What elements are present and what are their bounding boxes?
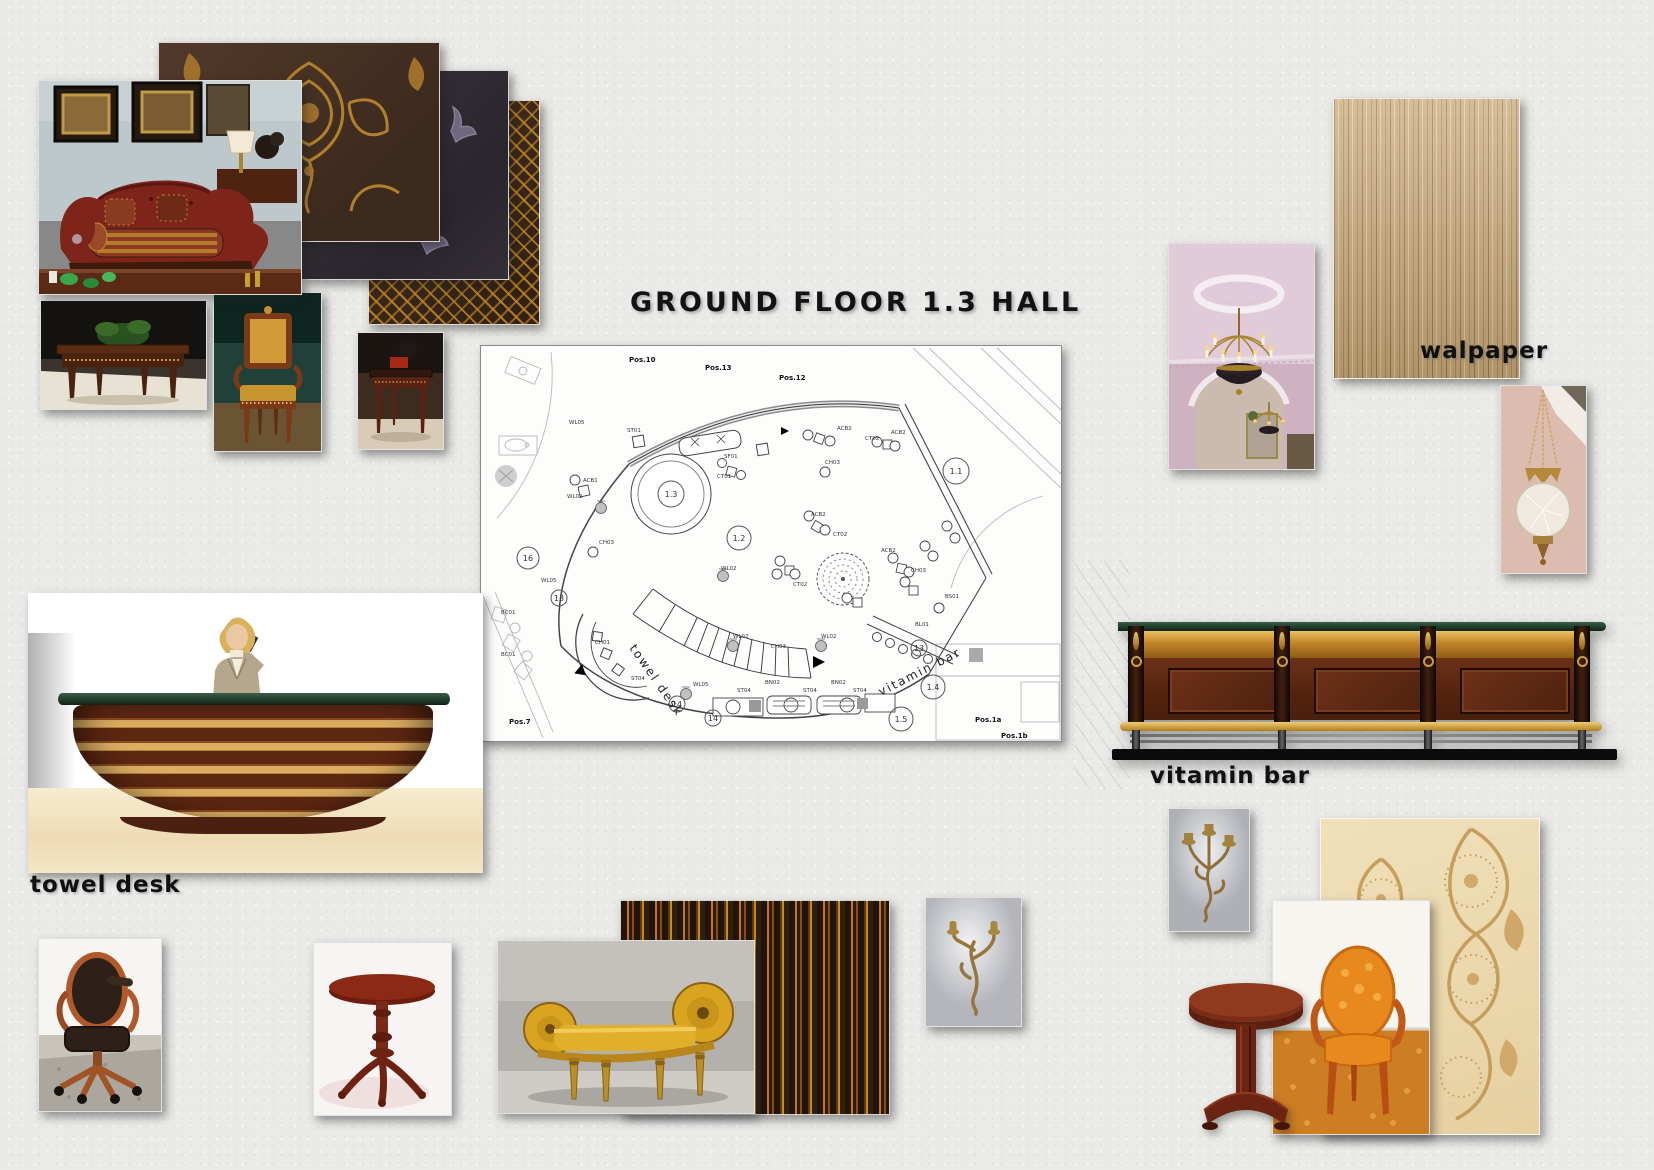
svg-text:13: 13 [554, 594, 564, 603]
svg-text:13: 13 [914, 644, 924, 653]
svg-text:BN02: BN02 [765, 680, 780, 686]
bar-gold-frieze [1128, 631, 1590, 658]
plan-furniture-symbols [570, 430, 960, 607]
towel-desk-render [28, 593, 483, 873]
svg-text:ST01: ST01 [627, 428, 641, 434]
towel-desk-countertop [58, 693, 450, 705]
round-table-cutout [1186, 980, 1306, 1135]
svg-text:CT02: CT02 [865, 436, 879, 442]
bar-foot [1132, 730, 1140, 749]
bar-footrail [1120, 722, 1602, 731]
wall-picture-frames [55, 83, 249, 141]
pilaster-drop-ornament [1279, 632, 1285, 650]
svg-text:CH03: CH03 [911, 568, 926, 574]
svg-text:BC01: BC01 [501, 652, 516, 658]
pilaster-ring-ornament [1423, 656, 1434, 667]
svg-text:BS01: BS01 [945, 594, 959, 600]
plan-counters [713, 694, 895, 716]
svg-text:CH03: CH03 [599, 540, 614, 546]
svg-text:Pos.1b: Pos.1b [1001, 732, 1028, 740]
pilaster-drop-ornament [1425, 632, 1431, 650]
vitamin-bar-label: vitamin bar [1150, 763, 1310, 789]
svg-text:SF01: SF01 [724, 454, 738, 460]
towel-desk-wall-shadow [28, 633, 76, 813]
svg-text:ACB2: ACB2 [837, 426, 852, 432]
svg-text:CH01: CH01 [595, 640, 610, 646]
chaise-bench-photo [497, 940, 755, 1114]
svg-text:1.4: 1.4 [927, 683, 940, 692]
svg-text:Pos.1a: Pos.1a [975, 716, 1002, 724]
side-table-photo [357, 332, 444, 450]
office-chair-photo [38, 938, 162, 1112]
svg-text:CH03: CH03 [771, 644, 786, 650]
svg-text:WL02: WL02 [721, 566, 737, 572]
bar-pilaster [1574, 626, 1590, 722]
svg-text:WL02: WL02 [733, 634, 749, 640]
design-board: GROUND FLOOR 1.3 HALL [0, 0, 1654, 1170]
svg-text:WL05: WL05 [693, 682, 709, 688]
pilaster-ring-ornament [1277, 656, 1288, 667]
svg-text:Pos.7: Pos.7 [509, 718, 531, 726]
svg-text:BN02: BN02 [831, 680, 846, 686]
svg-text:ACB1: ACB1 [583, 478, 598, 484]
pilaster-ring-ornament [1131, 656, 1142, 667]
svg-text:1.3: 1.3 [665, 490, 678, 499]
pilaster-drop-ornament [1133, 632, 1139, 650]
bar-lower-rail [1130, 734, 1592, 737]
svg-text:ST04: ST04 [737, 688, 751, 694]
svg-text:Pos.13: Pos.13 [705, 364, 732, 372]
svg-text:Pos.10: Pos.10 [629, 356, 656, 364]
svg-text:CH03: CH03 [825, 460, 840, 466]
svg-text:CT02: CT02 [793, 582, 807, 588]
svg-text:CT02: CT02 [833, 532, 847, 538]
bar-base-plinth [1112, 749, 1617, 760]
svg-text:CT01: CT01 [717, 474, 731, 480]
svg-text:1.2: 1.2 [733, 534, 746, 543]
vitamin-bar-render [1112, 598, 1617, 773]
coffee-table-illustration [41, 301, 206, 409]
office-chair-illustration [39, 939, 161, 1111]
bar-pilaster [1128, 626, 1144, 722]
plan-staircase [633, 589, 825, 678]
svg-text:14: 14 [708, 714, 718, 723]
gold-armchair-illustration [214, 293, 321, 451]
bar-foot [1424, 730, 1432, 749]
bar-mahogany-body [1128, 658, 1590, 720]
plan-floorlamp-symbols [596, 499, 827, 700]
svg-text:WL02: WL02 [821, 634, 837, 640]
bar-lower-rail [1130, 740, 1592, 743]
bar-foot [1278, 730, 1286, 749]
foreground-table-illustration [39, 269, 301, 294]
board-title: GROUND FLOOR 1.3 HALL [630, 287, 1030, 318]
sofa-lounge-illustration [39, 81, 301, 294]
svg-text:16: 16 [523, 554, 533, 563]
bar-countertop [1118, 622, 1606, 631]
bar-panel [1460, 668, 1570, 714]
wall-sconce-photo [925, 897, 1022, 1027]
wall-sconce-illustration [926, 898, 1021, 1026]
svg-text:BL01: BL01 [915, 622, 929, 628]
bar-pilaster [1274, 626, 1290, 722]
svg-text:Pos.12: Pos.12 [779, 374, 806, 382]
pilaster-drop-ornament [1579, 632, 1585, 650]
round-table-cutout-illustration [1186, 980, 1306, 1135]
svg-text:WL05: WL05 [569, 420, 585, 426]
pedestal-table-photo [313, 942, 452, 1116]
wallpaper-label: walpaper [1420, 338, 1548, 364]
bar-panel [1314, 668, 1424, 714]
side-table-illustration [358, 333, 443, 449]
gold-armchair-photo [213, 292, 322, 452]
svg-text:ACB2: ACB2 [811, 512, 826, 518]
pendant-lamp-illustration [1501, 386, 1586, 573]
floor-plan-drawing: 1.1 1.2 1.3 1.4 1.5 16 13 13 14 14 Pos.1… [481, 346, 1061, 741]
svg-text:ACB2: ACB2 [891, 430, 906, 436]
candelabra-sconce-photo [1168, 808, 1250, 932]
towel-desk-label: towel desk [30, 872, 181, 898]
svg-text:WL05: WL05 [541, 578, 557, 584]
bar-panel [1168, 668, 1278, 714]
chaise-bench-illustration [498, 941, 754, 1113]
pilaster-ring-ornament [1577, 656, 1588, 667]
bar-pilaster [1420, 626, 1436, 722]
floor-plan: 1.1 1.2 1.3 1.4 1.5 16 13 13 14 14 Pos.1… [480, 345, 1062, 742]
chandelier-photo [1168, 243, 1315, 470]
svg-text:1.5: 1.5 [895, 715, 908, 724]
svg-text:WL02: WL02 [567, 494, 583, 500]
svg-text:1.1: 1.1 [950, 467, 963, 476]
coffee-table-photo [40, 300, 207, 410]
sofa-lounge-photo [38, 80, 302, 295]
bar-foot [1578, 730, 1586, 749]
svg-text:BC01: BC01 [501, 610, 516, 616]
wallpaper-swatch [1333, 98, 1520, 379]
chandelier-illustration [1169, 244, 1314, 469]
svg-text:ST04: ST04 [853, 688, 867, 694]
pedestal-table-illustration [314, 943, 451, 1115]
candelabra-sconce-illustration [1169, 809, 1249, 931]
svg-text:ACB2: ACB2 [881, 548, 896, 554]
svg-text:ST04: ST04 [631, 676, 645, 682]
pendant-lamp-photo [1500, 385, 1587, 574]
svg-text:ST04: ST04 [803, 688, 817, 694]
